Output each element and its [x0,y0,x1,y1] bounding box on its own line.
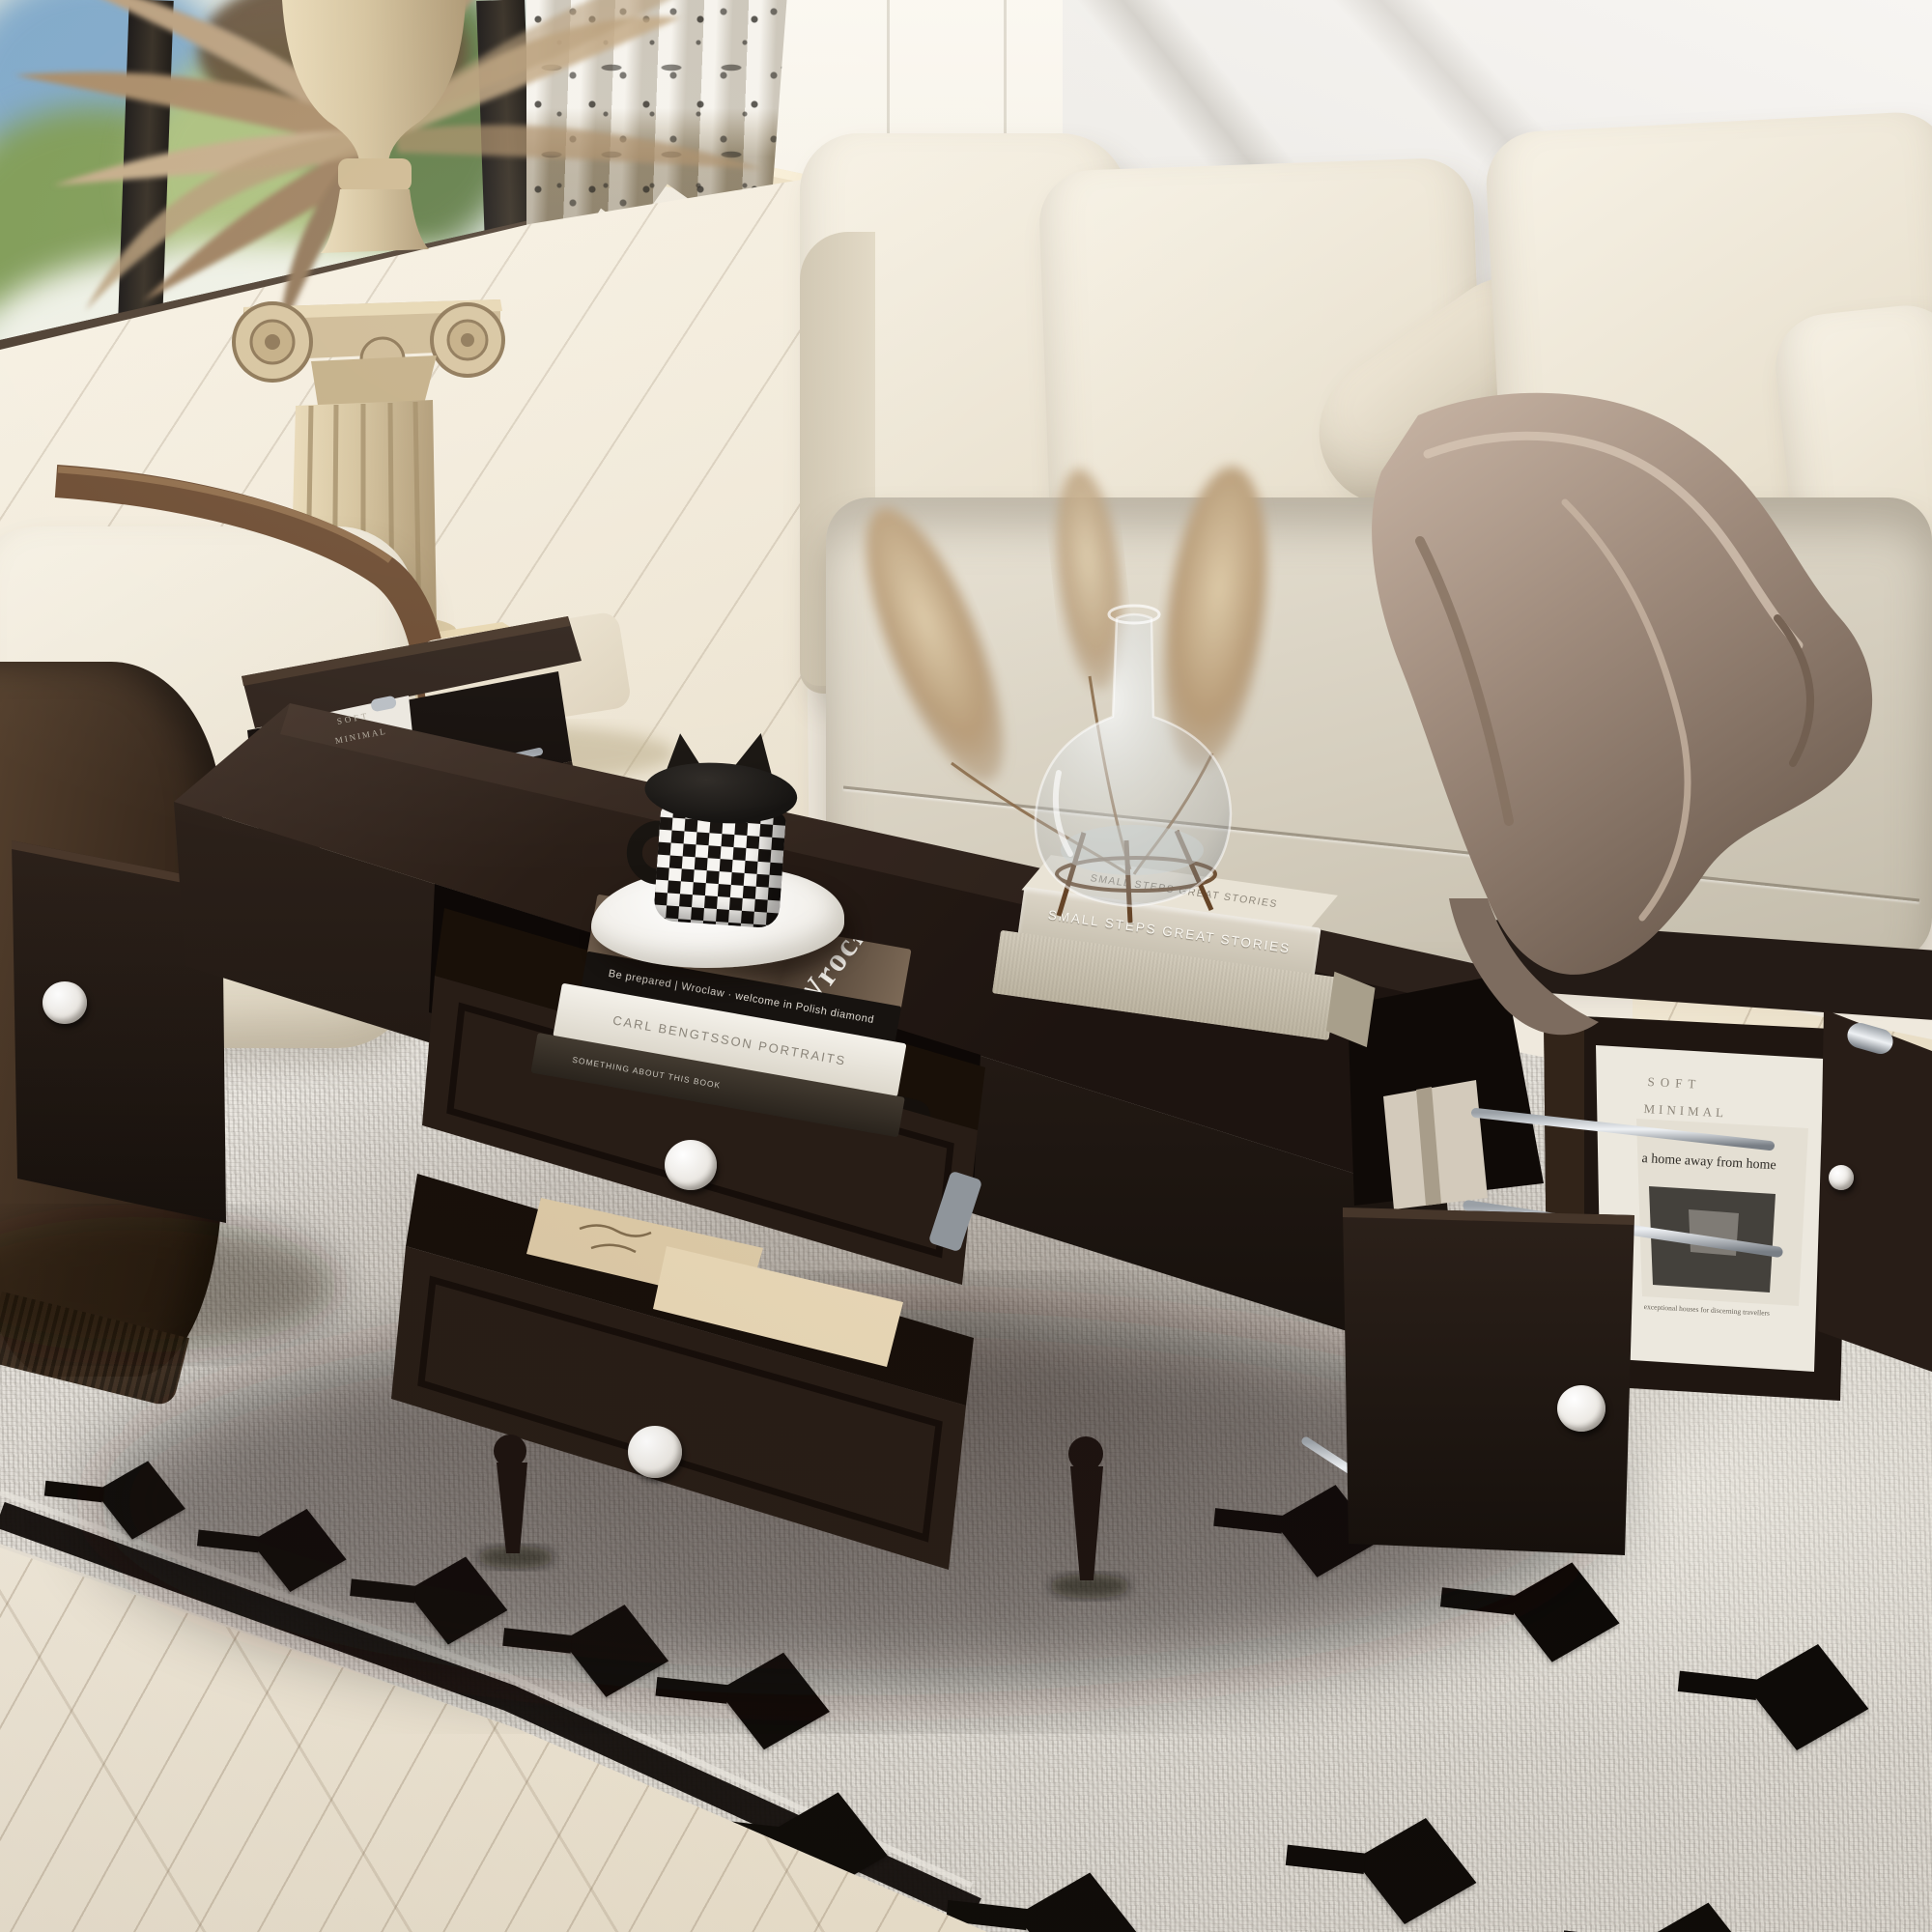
satin-throw [0,0,1932,1932]
soft-minimal-line1: SOFT [1647,1074,1702,1093]
living-room-product-photo: Wrocław Be prepared | Wroclaw · welcome … [0,0,1932,1932]
